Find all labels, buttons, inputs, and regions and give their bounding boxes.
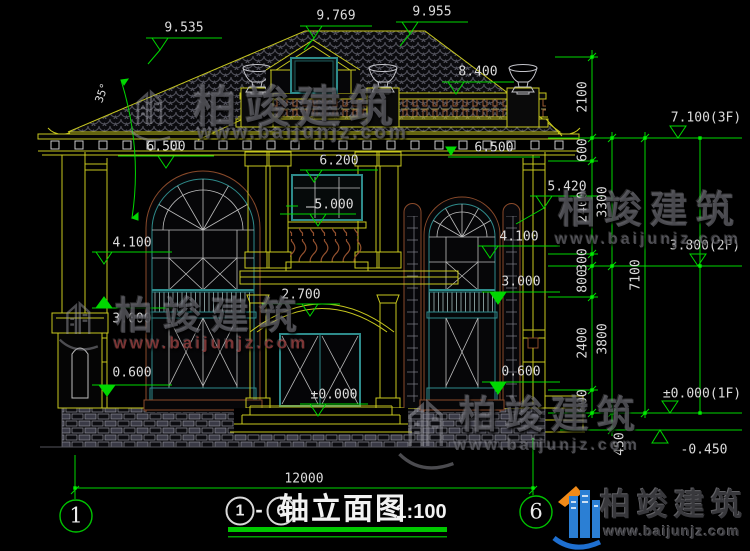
floor-level-label: -0.450: [681, 444, 728, 457]
level-label: 5.000: [314, 199, 353, 212]
level-label: 4.100: [112, 237, 151, 250]
level-label: 6.500: [146, 141, 185, 154]
watermark-url: www.baijunjz.com: [114, 335, 309, 352]
axis-bubble-1: 1: [69, 506, 82, 527]
dim-label: 2400: [577, 327, 590, 358]
level-label: 0.600: [501, 366, 540, 379]
watermark-url: www.baijunjz.com: [454, 438, 640, 454]
watermark-url: www.baijunjz.com: [555, 232, 741, 248]
watermark-brand: 柏竣建筑: [459, 397, 643, 435]
title-axis-start: 1: [226, 497, 255, 526]
overall-width-dim: 12000: [284, 473, 323, 486]
brand-logo-url: www.baijunjz.com: [604, 524, 741, 538]
dim-label: 600: [577, 138, 590, 161]
watermark-brand: 柏竣建筑: [558, 192, 742, 230]
brand-logo-name: 柏竣建筑: [600, 490, 748, 521]
level-label: ±0.000: [311, 389, 358, 402]
level-label: 6.500: [474, 142, 513, 155]
floor-level-label: 7.100(3F): [671, 112, 741, 125]
axis-bubble-6: 6: [529, 502, 542, 523]
dim-label: 300: [577, 248, 590, 271]
level-label: 0.600: [112, 367, 151, 380]
title-separator: -: [255, 499, 262, 521]
dim-label: 3800: [597, 323, 610, 354]
dim-label: 7100: [630, 259, 643, 290]
brand-logo-icon: [554, 486, 600, 547]
level-label: 6.200: [319, 155, 358, 168]
level-label: 4.100: [499, 231, 538, 244]
level-label: 8.400: [458, 66, 497, 79]
level-label: 9.769: [316, 10, 355, 23]
cad-elevation-drawing: 9.535 9.769 9.955 8.400 35° 6.500 4.100 …: [0, 0, 750, 551]
level-label: 9.535: [164, 22, 203, 35]
drawing-scale: 1:100: [395, 502, 446, 522]
title-underline: [228, 527, 447, 538]
dim-label: 800: [577, 269, 590, 292]
dim-label: 2100: [577, 81, 590, 112]
level-label: 3.000: [501, 276, 540, 289]
watermark-url: www.baijunjz.com: [197, 124, 409, 143]
level-label: 9.955: [412, 6, 451, 19]
floor-level-label: ±0.000(1F): [663, 388, 741, 401]
watermark-brand: 柏竣建筑: [115, 298, 307, 336]
drawing-title: 轴立面图: [279, 495, 407, 525]
left-arched-window: [144, 171, 262, 412]
